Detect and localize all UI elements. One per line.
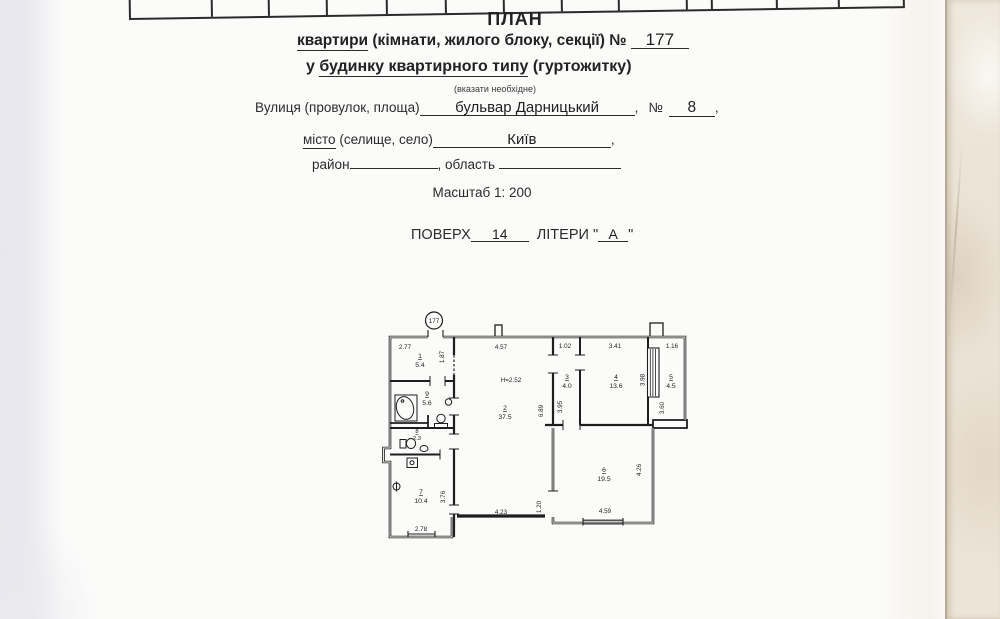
region-label: , область <box>438 157 496 172</box>
room1-area: 5.4 <box>415 362 425 369</box>
room3-area: 4.0 <box>562 383 572 390</box>
room6-number: 6 <box>602 467 606 474</box>
table-divider <box>617 0 619 10</box>
region-blank <box>499 168 621 169</box>
room4-area: 13.6 <box>609 383 622 390</box>
floor-plan-drawing: 177 1 5.4 2 37.5 3 4.0 4 13.6 5 4.5 6 19… <box>378 303 708 548</box>
scanned-document-page: ПЛАН квартири (кімнати, жилого блоку, се… <box>0 0 1000 619</box>
subtitle-line-2-post: (гуртожитку) <box>528 58 631 75</box>
room9-number: 9 <box>425 391 429 398</box>
dim-room5-depth: 3.60 <box>659 401 666 414</box>
room2-area: 37.5 <box>498 414 511 421</box>
table-divider <box>325 0 327 15</box>
dim-room7-width: 2.78 <box>415 526 428 533</box>
room8-area: 2.3 <box>413 436 421 442</box>
wall-core <box>384 337 686 537</box>
entrance-door-ticks <box>428 330 443 337</box>
quote-close: " <box>628 227 633 243</box>
room7-number: 7 <box>419 489 423 496</box>
subtitle-line-1: квартири (кімнати, жилого блоку, секції)… <box>297 31 689 50</box>
city-row: місто (селище, село)Київ, <box>303 132 615 148</box>
room3-number: 3 <box>565 374 569 381</box>
district-label: район <box>312 157 350 172</box>
dim-room2-depth: 6.89 <box>538 404 545 417</box>
door-ticks-room6 <box>563 420 580 430</box>
subtitle-word-apartment: квартири <box>297 32 368 51</box>
dim-room7-depth: 3.76 <box>440 490 447 503</box>
subtitle-line-2-pre: у <box>306 58 319 75</box>
comma: , <box>611 132 615 147</box>
page-title: ПЛАН <box>440 9 590 30</box>
letter-value: А <box>598 227 628 242</box>
room6-area: 19.5 <box>597 476 610 483</box>
dim-room3-width: 1.02 <box>559 343 572 350</box>
city-label-rest: (селище, село) <box>336 132 433 147</box>
table-divider <box>685 0 687 9</box>
letters-label: ЛІТЕРИ <box>537 227 589 243</box>
room8-number: 8 <box>415 429 418 435</box>
city-value: Київ <box>433 132 611 148</box>
subtitle-line-2: у будинку квартирного типу (гуртожитку) <box>306 58 632 76</box>
door-swing-icon <box>393 482 400 492</box>
subtitle-line-1-rest: (кімнати, жилого блоку, секції) № <box>368 32 631 49</box>
table-divider <box>267 0 269 16</box>
city-word: місто <box>303 132 336 149</box>
door-ticks-room9 <box>430 376 445 386</box>
floor-line: ПОВЕРХ14ЛІТЕРИ "А" <box>411 227 633 243</box>
district-row: район, область <box>312 157 621 172</box>
house-number-value: 8 <box>669 100 715 117</box>
plan-badge-number: 177 <box>429 318 440 325</box>
dim-room5-width: 1.16 <box>666 343 679 350</box>
dim-room4-depth: 3.98 <box>640 373 647 386</box>
dim-corridor-width: 4.23 <box>495 509 508 516</box>
hinge-circle-icon <box>445 399 451 405</box>
form-note: (вказати необхідне) <box>428 84 562 94</box>
number-sign: № <box>648 100 662 115</box>
paper-crease <box>949 140 964 320</box>
vent-shaft-top-1 <box>495 325 502 337</box>
bathtub-icon <box>394 395 417 421</box>
district-blank <box>350 168 438 169</box>
dim-room3-depth: 3.95 <box>557 400 564 413</box>
table-divider <box>128 0 130 18</box>
dim-room6-width: 4.59 <box>599 508 612 515</box>
street-label: Вулиця (провулок, площа) <box>255 100 420 115</box>
floor-value: 14 <box>471 227 529 242</box>
room2-number: 2 <box>503 405 507 412</box>
dim-room2-width: 4.57 <box>495 344 508 351</box>
apartment-number-value: 177 <box>631 31 689 49</box>
floor-plan: 177 1 5.4 2 37.5 3 4.0 4 13.6 5 4.5 6 19… <box>378 303 708 548</box>
ceiling-height-note: H=2.52 <box>501 377 522 384</box>
table-divider <box>902 0 904 6</box>
room1-number: 1 <box>418 353 422 360</box>
street-row: Вулиця (провулок, площа)бульвар Дарницьк… <box>255 100 719 117</box>
wc-sink-icon <box>420 446 428 452</box>
room5-area: 4.5 <box>666 383 676 390</box>
stove-icon <box>407 458 418 468</box>
room5-number: 5 <box>669 374 673 381</box>
paper-fold-edge <box>945 0 1000 619</box>
scale-line: Масштаб 1: 200 <box>420 185 544 200</box>
dim-room4-width: 3.41 <box>609 343 622 350</box>
vent-shaft-top-2 <box>650 323 663 337</box>
room4-number: 4 <box>614 374 618 381</box>
subtitle-word-building: будинку квартирного типу <box>319 58 528 77</box>
street-value: бульвар Дарницький <box>420 100 635 116</box>
table-divider <box>837 0 839 7</box>
door-ticks-room3 <box>575 355 585 370</box>
comma: , <box>715 100 719 115</box>
floor-label: ПОВЕРХ <box>411 227 471 243</box>
dim-room1-width: 2.77 <box>399 344 412 351</box>
dim-room1-depth: 1.87 <box>439 350 446 363</box>
washbasin-icon <box>435 414 448 428</box>
room9-area: 5.6 <box>422 400 432 407</box>
dim-passage: 1.20 <box>536 500 543 513</box>
table-divider <box>385 0 387 14</box>
table-divider <box>775 0 777 8</box>
comma: , <box>635 100 639 115</box>
dim-room6-depth: 4.26 <box>636 463 643 476</box>
table-divider <box>210 0 212 17</box>
wall-step-right <box>653 420 687 428</box>
room7-area: 10.4 <box>414 498 427 505</box>
table-divider <box>710 0 712 9</box>
